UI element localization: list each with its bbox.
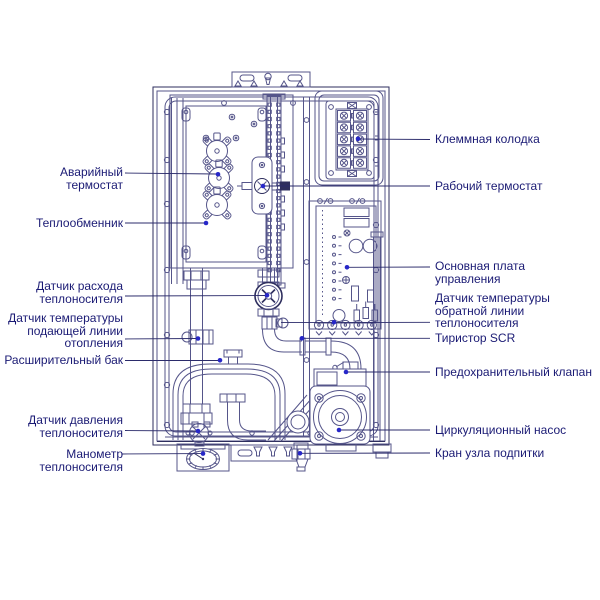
pressure-sensor — [186, 422, 212, 446]
pump-assembly — [310, 362, 370, 451]
label-coolant-manometer: Манометр теплоносителя — [18, 448, 123, 473]
label-safety-valve: Предохранительный клапан — [435, 366, 600, 379]
label-heat-exchanger: Теплообменник — [13, 217, 123, 230]
label-expansion-tank: Расширительный бак — [3, 354, 123, 367]
boiler-diagram-page: Аварийный термостат Теплообменник Датчик… — [0, 0, 600, 600]
label-terminal-block: Клеммная колодка — [435, 133, 585, 146]
label-coolant-flow-sensor: Датчик расхода теплоносителя — [11, 280, 123, 305]
bottom-panel — [231, 445, 297, 461]
supply-pipe — [181, 268, 213, 424]
terminal-block — [315, 91, 383, 185]
makeup-valve — [292, 443, 310, 471]
manometer-gauge — [177, 444, 229, 471]
label-scr-thyristor: Тиристор SCR — [435, 332, 565, 345]
mounting-bracket — [232, 72, 310, 87]
flow-sensor — [255, 282, 282, 316]
label-working-thermostat: Рабочий термостат — [435, 180, 585, 193]
label-emergency-thermostat: Аварийный термостат — [23, 166, 123, 191]
label-circulation-pump: Циркуляционный насос — [435, 424, 595, 437]
label-main-control-board: Основная плата управления — [435, 260, 547, 285]
tank-elbow-pipe — [220, 394, 266, 440]
label-supply-line-temp-sensor: Датчик температуры подающей линии отопле… — [1, 312, 123, 350]
circulation-pump — [310, 386, 370, 451]
label-return-line-temp-sensor: Датчик температуры обратной линии теплон… — [435, 292, 570, 330]
label-coolant-pressure-sensor: Датчик давления теплоносителя — [11, 414, 123, 439]
expansion-tank — [173, 350, 285, 440]
label-makeup-valve: Кран узла подпитки — [435, 447, 585, 460]
